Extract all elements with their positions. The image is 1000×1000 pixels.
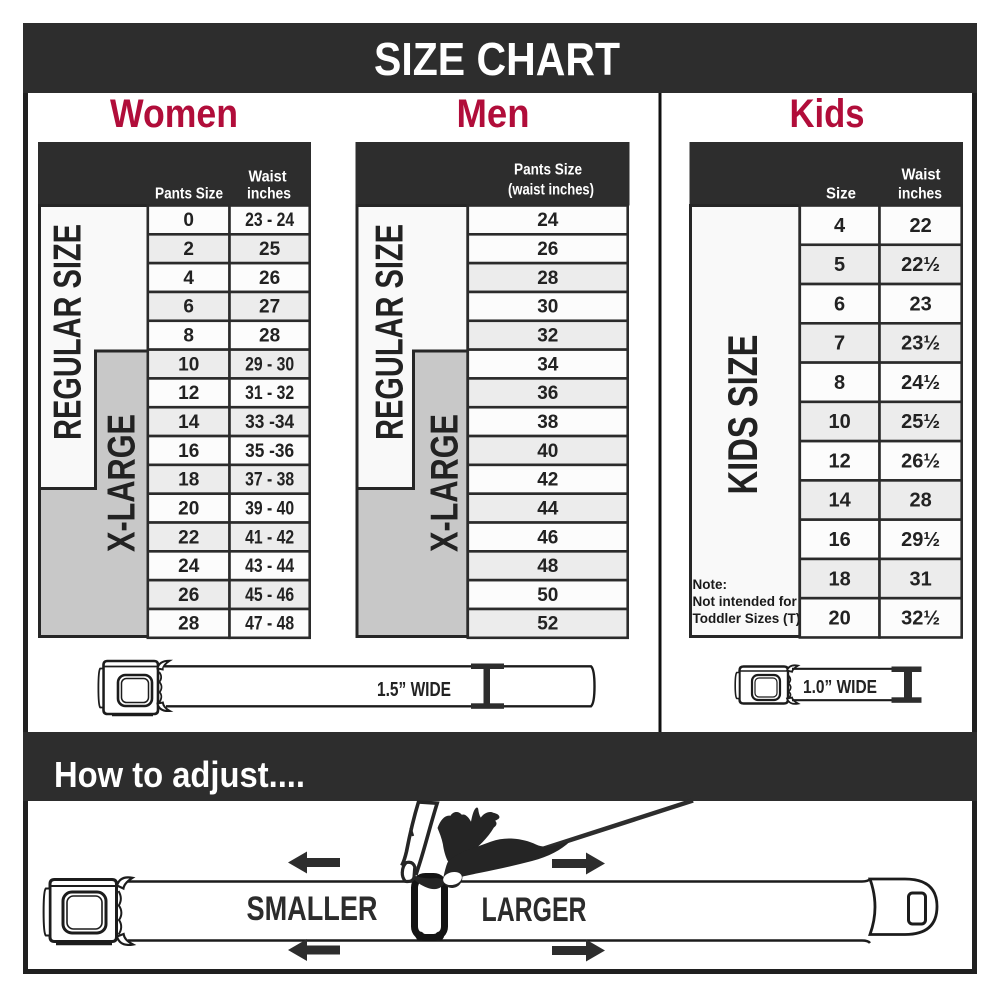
svg-text:23½: 23½ [901, 333, 940, 355]
svg-text:25½: 25½ [901, 411, 940, 433]
svg-text:inches: inches [898, 186, 942, 203]
svg-text:28: 28 [259, 326, 280, 347]
svg-text:32½: 32½ [901, 608, 940, 630]
svg-text:Men: Men [457, 92, 530, 136]
svg-text:1.0” WIDE: 1.0” WIDE [803, 676, 877, 697]
svg-text:23 - 24: 23 - 24 [245, 210, 294, 231]
svg-text:(waist inches): (waist inches) [508, 181, 594, 198]
svg-text:20: 20 [178, 499, 199, 520]
svg-text:18: 18 [828, 568, 850, 590]
svg-text:12: 12 [828, 451, 850, 473]
svg-text:Kids: Kids [790, 92, 865, 136]
svg-text:8: 8 [834, 372, 845, 394]
svg-text:18: 18 [178, 470, 199, 491]
svg-text:4: 4 [183, 268, 194, 289]
svg-text:14: 14 [828, 490, 851, 512]
svg-text:1.5” WIDE: 1.5” WIDE [377, 679, 451, 701]
svg-text:10: 10 [828, 411, 850, 433]
svg-text:Size: Size [826, 186, 856, 203]
svg-text:28: 28 [909, 490, 931, 512]
svg-text:29½: 29½ [901, 529, 940, 551]
svg-text:29 - 30: 29 - 30 [245, 354, 294, 375]
svg-text:Not intended for: Not intended for [693, 594, 798, 609]
svg-text:28: 28 [537, 268, 558, 289]
svg-text:35 -36: 35 -36 [245, 441, 294, 462]
svg-text:How to adjust....: How to adjust.... [54, 754, 305, 795]
svg-text:31 - 32: 31 - 32 [245, 383, 294, 404]
svg-text:33 -34: 33 -34 [245, 412, 294, 433]
svg-text:34: 34 [537, 354, 559, 375]
svg-text:5: 5 [834, 254, 845, 276]
svg-text:8: 8 [183, 326, 194, 347]
svg-text:26: 26 [259, 268, 280, 289]
svg-text:48: 48 [537, 556, 558, 577]
svg-text:40: 40 [537, 441, 558, 462]
svg-text:27: 27 [259, 297, 280, 318]
svg-text:28: 28 [178, 614, 199, 635]
svg-text:39 - 40: 39 - 40 [245, 499, 294, 520]
svg-text:Pants Size: Pants Size [514, 162, 582, 179]
svg-text:Waist: Waist [249, 168, 288, 185]
svg-text:7: 7 [834, 333, 845, 355]
svg-text:32: 32 [537, 326, 558, 347]
svg-text:22½: 22½ [901, 254, 940, 276]
svg-text:20: 20 [828, 608, 850, 630]
svg-text:31: 31 [909, 568, 931, 590]
svg-text:26: 26 [537, 239, 558, 260]
svg-text:25: 25 [259, 239, 281, 260]
svg-text:X-LARGE: X-LARGE [424, 414, 467, 552]
svg-text:4: 4 [834, 215, 846, 237]
svg-text:SIZE CHART: SIZE CHART [374, 33, 620, 85]
svg-text:Waist: Waist [902, 166, 942, 183]
svg-text:43 - 44: 43 - 44 [245, 556, 294, 577]
svg-text:24: 24 [178, 556, 200, 577]
svg-text:47 - 48: 47 - 48 [245, 614, 294, 635]
svg-text:2: 2 [183, 239, 194, 260]
svg-text:24: 24 [537, 210, 559, 231]
svg-text:6: 6 [834, 293, 845, 315]
svg-text:REGULAR SIZE: REGULAR SIZE [47, 224, 90, 440]
svg-text:30: 30 [537, 297, 558, 318]
svg-text:Toddler Sizes (T): Toddler Sizes (T) [693, 611, 801, 626]
svg-text:Pants Size: Pants Size [155, 186, 223, 203]
svg-text:23: 23 [909, 293, 931, 315]
svg-text:22: 22 [909, 215, 931, 237]
svg-text:Women: Women [110, 92, 238, 136]
svg-text:52: 52 [537, 614, 558, 635]
svg-text:22: 22 [178, 527, 199, 548]
svg-text:14: 14 [178, 412, 200, 433]
svg-text:42: 42 [537, 470, 558, 491]
svg-text:10: 10 [178, 354, 199, 375]
svg-text:41 - 42: 41 - 42 [245, 527, 294, 548]
svg-text:50: 50 [537, 585, 558, 606]
svg-text:12: 12 [178, 383, 199, 404]
svg-text:SMALLER: SMALLER [247, 890, 378, 928]
svg-text:26: 26 [178, 585, 199, 606]
svg-text:REGULAR SIZE: REGULAR SIZE [369, 224, 412, 440]
svg-text:inches: inches [247, 186, 291, 203]
svg-text:46: 46 [537, 527, 558, 548]
svg-text:24½: 24½ [901, 372, 940, 394]
svg-text:37 - 38: 37 - 38 [245, 470, 294, 491]
svg-text:0: 0 [183, 210, 194, 231]
svg-text:16: 16 [178, 441, 199, 462]
svg-text:38: 38 [537, 412, 558, 433]
svg-text:LARGER: LARGER [482, 891, 587, 929]
svg-text:45 - 46: 45 - 46 [245, 585, 294, 606]
svg-text:X-LARGE: X-LARGE [101, 414, 144, 552]
svg-text:16: 16 [828, 529, 850, 551]
svg-text:Note:: Note: [693, 577, 728, 592]
svg-text:44: 44 [537, 499, 559, 520]
svg-text:36: 36 [537, 383, 558, 404]
svg-text:KIDS SIZE: KIDS SIZE [719, 335, 766, 495]
svg-text:26½: 26½ [901, 451, 940, 473]
svg-text:6: 6 [183, 297, 194, 318]
